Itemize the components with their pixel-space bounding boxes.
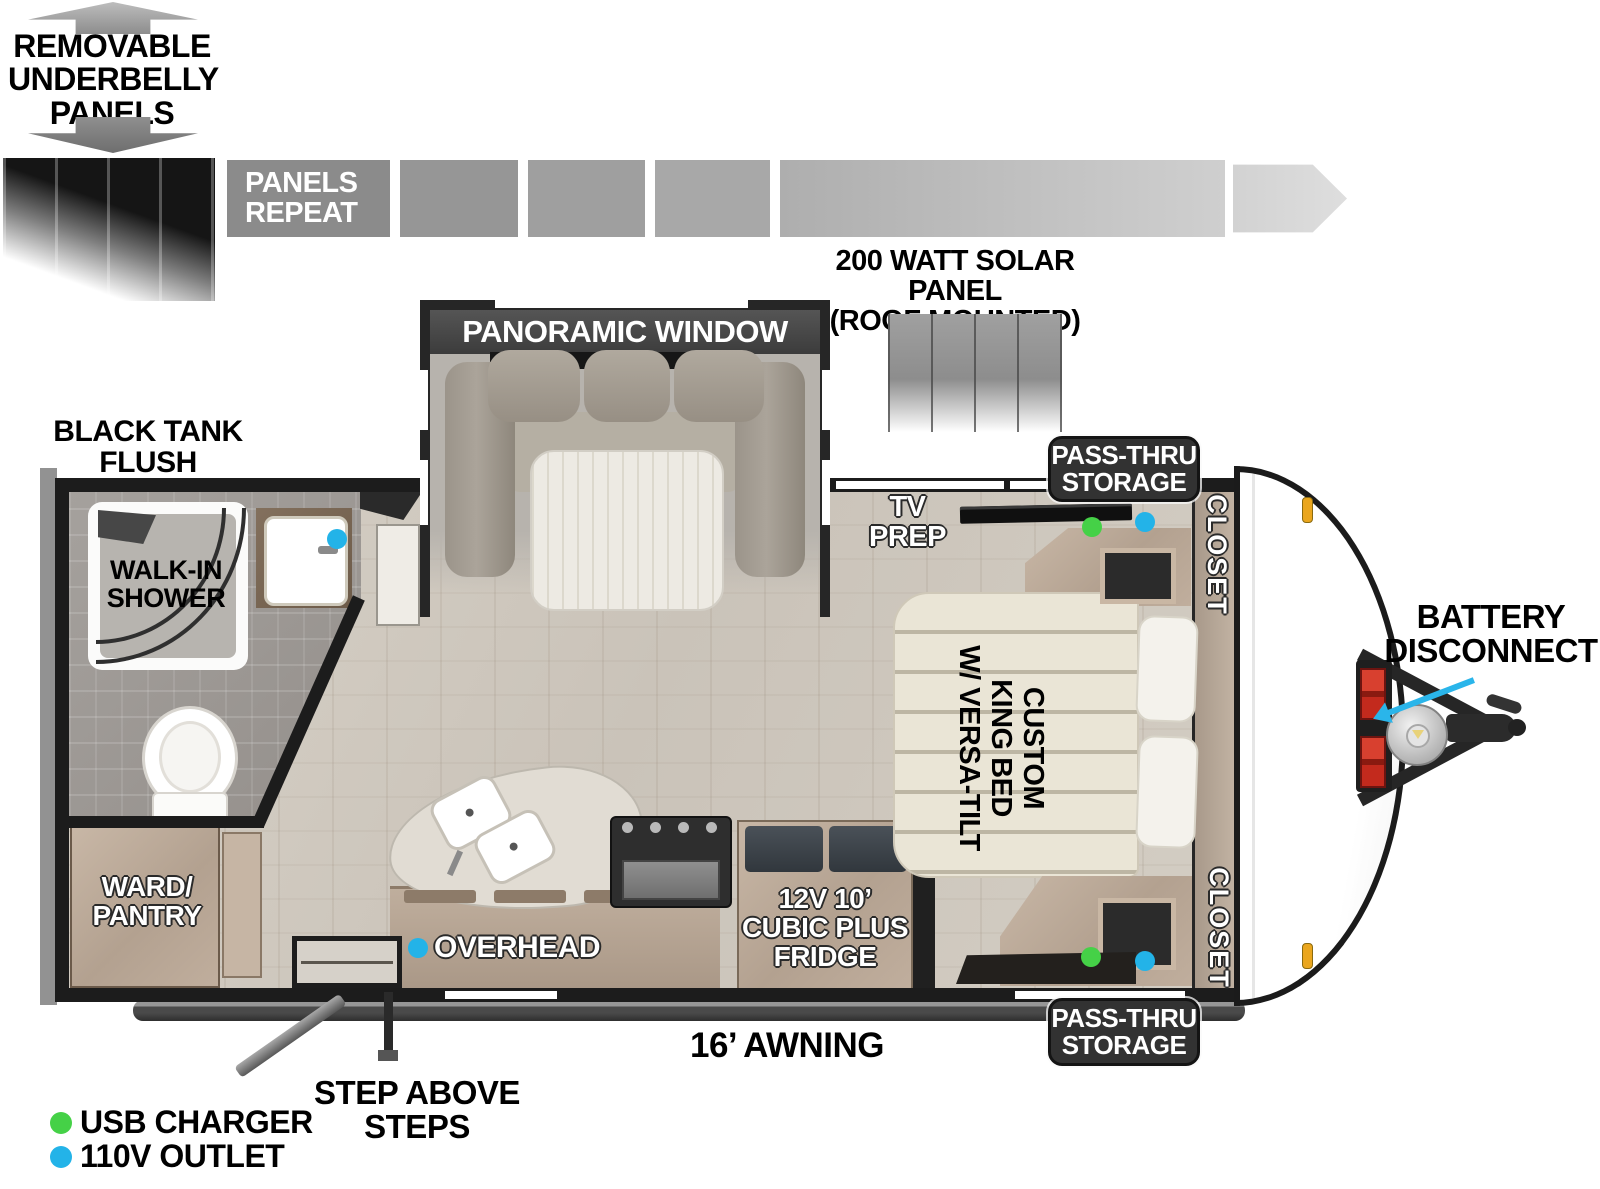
front-cap-seam (1252, 474, 1255, 998)
slideout-window-strip (822, 460, 830, 525)
underbelly-strip-segment (528, 160, 645, 237)
hitch-ball-socket (1508, 719, 1526, 736)
dresser-cubby (1100, 548, 1176, 604)
sofa-back-cushion (674, 350, 764, 422)
stove-knob-icon (622, 822, 633, 833)
slideout-window-strip (420, 460, 428, 525)
oven-window (622, 860, 720, 900)
stove-knob-icon (650, 822, 661, 833)
bathroom-bottom-wall (62, 816, 264, 828)
underbelly-note: REMOVABLE UNDERBELLY PANELS (8, 30, 216, 130)
closet-top-label: CLOSET (1201, 490, 1231, 620)
hitch-coupler (1446, 714, 1516, 742)
step-leg (384, 992, 393, 1054)
110v-outlet-dot (1135, 512, 1155, 532)
cabinet-drawer (404, 890, 476, 903)
tv-prep-label: TV PREP (850, 492, 965, 552)
underbelly-strip-segment (655, 160, 770, 237)
awning-label: 16’ AWNING (672, 1028, 902, 1064)
strip-arrow-icon (1233, 160, 1347, 237)
fridge-label: 12V 10’ CUBIC PLUS FRIDGE (737, 884, 913, 971)
bedroom-window-dark (956, 952, 1136, 984)
top-wall-left (55, 478, 430, 492)
110v-outlet-dot (408, 938, 428, 958)
closet-bottom-label: CLOSET (1203, 863, 1233, 993)
stove-knob-icon (678, 822, 689, 833)
battery-disconnect-label: BATTERY DISCONNECT (1382, 600, 1600, 669)
slideout-window-strip (495, 300, 748, 308)
sofa-slideout: PANORAMIC WINDOW (420, 300, 830, 617)
solar-panel-image (888, 314, 1062, 432)
battery (1360, 736, 1386, 788)
walk-in-shower-label: WALK-IN SHOWER (76, 556, 256, 612)
cabinet-drawer (494, 890, 566, 903)
ward-pantry-door (222, 832, 262, 978)
panoramic-window-label: PANORAMIC WINDOW (462, 316, 788, 348)
legend-110v-label: 110V OUTLET (80, 1140, 340, 1173)
stove-knob-icon (706, 822, 717, 833)
legend-usb-dot (50, 1112, 72, 1134)
king-bed-label: CUSTOM KING BED W/ VERSA-TILT (948, 613, 1048, 883)
legend-usb-label: USB CHARGER (80, 1106, 340, 1139)
slideout-window-strip (420, 370, 428, 430)
110v-outlet-dot (1135, 951, 1155, 971)
underbelly-panels-image (3, 158, 215, 301)
sofa-back-cushion (488, 350, 580, 422)
entry-step-well (292, 936, 402, 988)
step-foot (378, 1050, 398, 1061)
hitch-latch (1485, 693, 1523, 716)
toilet-seat (159, 721, 221, 793)
slideout-window-strip (822, 370, 830, 430)
pass-thru-storage-callout-top: PASS-THRU STORAGE (1048, 436, 1200, 502)
usb-charger-dot (1081, 947, 1101, 967)
pass-thru-storage-top-label: PASS-THRU STORAGE (1051, 442, 1196, 496)
entry-door-opening (445, 991, 557, 999)
overhead-label: OVERHEAD (434, 932, 594, 963)
stove-cooktop (610, 816, 732, 908)
pass-thru-storage-callout-bottom: PASS-THRU STORAGE (1048, 998, 1200, 1066)
pillow (1135, 615, 1199, 723)
pillow (1135, 735, 1199, 849)
rear-wall (55, 478, 69, 1002)
rv-floorplan-diagram: REMOVABLE UNDERBELLY PANELS PANELS REPEA… (0, 0, 1600, 1189)
fridge-door (745, 826, 823, 872)
tv (960, 503, 1132, 524)
panels-repeat-label: PANELS REPEAT (227, 160, 390, 228)
window (836, 481, 1004, 489)
110v-outlet-dot (327, 529, 347, 549)
propane-marker (1412, 730, 1424, 739)
legend-110v-dot (50, 1146, 72, 1168)
pass-thru-storage-bottom-label: PASS-THRU STORAGE (1051, 1005, 1196, 1059)
clearance-light-icon (1302, 497, 1313, 523)
sofa-back-cushion (584, 350, 670, 422)
black-tank-flush-label: BLACK TANK FLUSH (48, 416, 248, 478)
dinette-table (530, 450, 724, 611)
usb-charger-dot (1082, 517, 1102, 537)
underbelly-strip-segment: PANELS REPEAT (227, 160, 390, 237)
underbelly-strip-segment (400, 160, 518, 237)
panoramic-window-band: PANORAMIC WINDOW (430, 310, 820, 354)
underbelly-strip-segment (780, 160, 1225, 237)
ward-pantry-label: WARD/ PANTRY (77, 872, 217, 930)
linen-cabinet (376, 524, 420, 626)
clearance-light-icon (1302, 943, 1313, 969)
